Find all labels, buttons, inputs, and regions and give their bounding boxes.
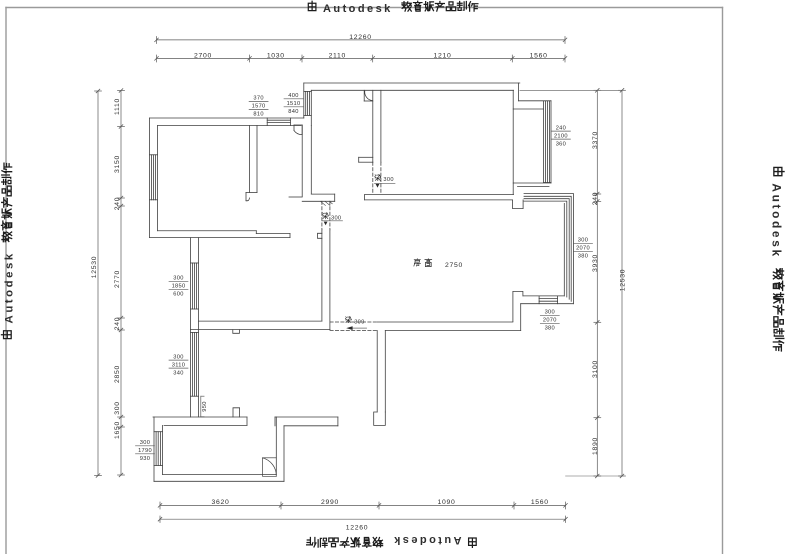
- svg-text:Autodesk: Autodesk: [392, 534, 462, 546]
- svg-text:12260: 12260: [349, 34, 371, 41]
- svg-text:1560: 1560: [531, 499, 549, 506]
- svg-text:300: 300: [140, 440, 150, 446]
- svg-text:2770: 2770: [114, 270, 121, 288]
- svg-text:1570: 1570: [252, 104, 266, 110]
- svg-text:2070: 2070: [576, 246, 590, 252]
- svg-text:380: 380: [578, 254, 588, 260]
- svg-text:930: 930: [140, 456, 150, 462]
- svg-text:300: 300: [331, 215, 341, 221]
- svg-text:1110: 1110: [114, 98, 121, 115]
- svg-text:300: 300: [383, 177, 393, 183]
- svg-text:240: 240: [114, 197, 121, 210]
- svg-text:1850: 1850: [172, 284, 186, 290]
- svg-text:300: 300: [578, 238, 588, 244]
- svg-text:840: 840: [288, 109, 298, 115]
- svg-text:12530: 12530: [91, 256, 98, 278]
- svg-text:240: 240: [556, 125, 566, 131]
- svg-text:3100: 3100: [592, 360, 599, 378]
- svg-text:3150: 3150: [114, 155, 121, 173]
- svg-text:1560: 1560: [530, 53, 548, 60]
- svg-text:3370: 3370: [592, 131, 599, 149]
- svg-text:380: 380: [545, 326, 555, 332]
- svg-text:2110: 2110: [329, 53, 346, 60]
- svg-text:2990: 2990: [321, 499, 339, 506]
- svg-text:1030: 1030: [267, 53, 285, 60]
- svg-text:2700: 2700: [194, 53, 212, 60]
- svg-text:2850: 2850: [114, 365, 121, 383]
- svg-text:300: 300: [545, 310, 555, 316]
- svg-text:1790: 1790: [138, 448, 152, 454]
- svg-text:300: 300: [114, 401, 121, 414]
- svg-text:12530: 12530: [620, 269, 627, 291]
- svg-text:3110: 3110: [172, 362, 185, 368]
- svg-text:2750: 2750: [445, 262, 463, 269]
- svg-text:950: 950: [202, 401, 208, 411]
- svg-text:3620: 3620: [212, 499, 230, 506]
- svg-text:300: 300: [173, 354, 183, 360]
- svg-text:300: 300: [173, 276, 183, 282]
- svg-text:1510: 1510: [287, 101, 301, 107]
- svg-text:2100: 2100: [554, 133, 568, 139]
- svg-text:240: 240: [114, 317, 121, 330]
- svg-text:1210: 1210: [434, 53, 452, 60]
- svg-text:1890: 1890: [592, 437, 599, 455]
- svg-text:1090: 1090: [438, 499, 456, 506]
- svg-text:1650: 1650: [114, 421, 121, 439]
- svg-text:360: 360: [556, 141, 566, 147]
- svg-text:Autodesk: Autodesk: [323, 3, 393, 15]
- svg-text:2070: 2070: [543, 318, 557, 324]
- svg-text:3930: 3930: [592, 254, 599, 272]
- svg-text:400: 400: [288, 93, 298, 99]
- svg-text:240: 240: [592, 192, 599, 205]
- svg-text:Autodesk: Autodesk: [3, 251, 15, 323]
- svg-text:340: 340: [173, 370, 183, 376]
- svg-text:300: 300: [354, 319, 364, 325]
- svg-text:810: 810: [253, 112, 263, 118]
- svg-text:12260: 12260: [346, 524, 368, 531]
- svg-text:600: 600: [173, 292, 183, 298]
- svg-text:370: 370: [253, 96, 263, 102]
- svg-text:Autodesk: Autodesk: [770, 183, 784, 258]
